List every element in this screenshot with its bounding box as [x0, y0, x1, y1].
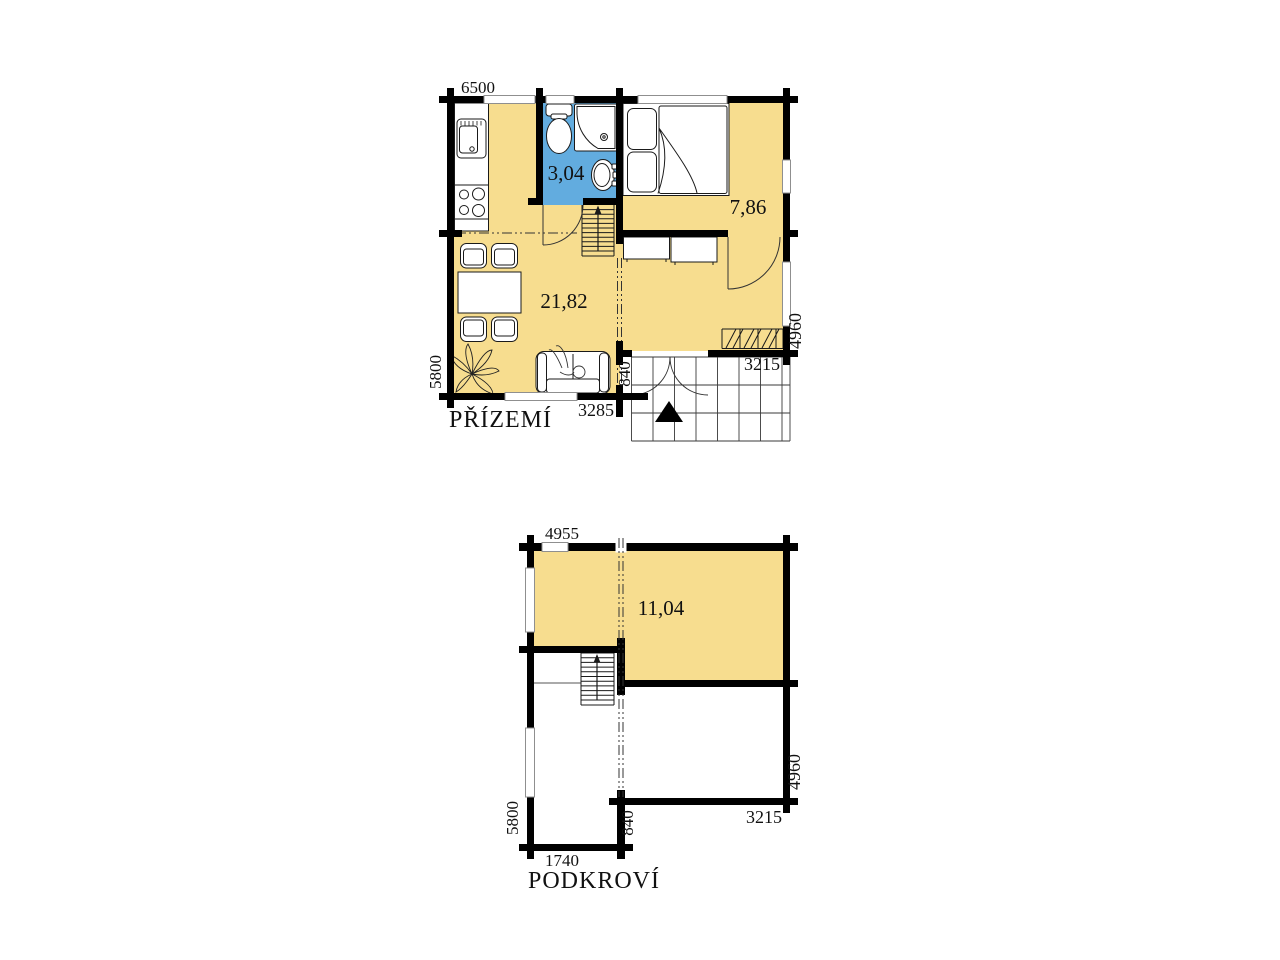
- window: [542, 543, 568, 552]
- window: [546, 96, 574, 104]
- window: [526, 728, 535, 797]
- double-bed: [623, 104, 729, 196]
- room-area-attic: 11,04: [638, 596, 685, 620]
- dim-height-right: 4960: [784, 754, 804, 790]
- room-area-bathroom: 3,04: [548, 161, 585, 185]
- dim-width-top: 4955: [545, 524, 579, 543]
- sofa: [536, 346, 610, 394]
- dining-table: [458, 272, 521, 313]
- ground-floor-title: PŘÍZEMÍ: [449, 407, 552, 433]
- chair: [492, 317, 518, 342]
- attic-stairs: [581, 653, 614, 705]
- dim-height-left: 5800: [426, 355, 445, 389]
- dim-terrace-width: 3215: [744, 354, 780, 374]
- chair: [492, 244, 518, 269]
- dim-height-left: 5800: [503, 801, 522, 835]
- window: [638, 96, 727, 104]
- dim-living-bottom: 3285: [578, 400, 614, 420]
- ground-floor-plan: 6500 3,04 7,86 21,82 5800 3285 840 3215 …: [426, 78, 805, 441]
- entrance-arrow-icon: [655, 401, 683, 422]
- dim-terrace-depth: 840: [615, 361, 634, 387]
- floor-plan-canvas: 6500 3,04 7,86 21,82 5800 3285 840 3215 …: [0, 0, 1280, 960]
- terrace-door-swing-arcs: [632, 357, 708, 395]
- room-area-living: 21,82: [540, 289, 587, 313]
- washbasin: [592, 160, 620, 191]
- chair: [461, 244, 487, 269]
- window: [526, 568, 535, 632]
- section-break: [616, 542, 627, 553]
- shower: [575, 104, 618, 151]
- attic-floor-plan: 4955 11,04 5800 1740 840 3215 4960 PODKR…: [503, 524, 804, 894]
- room-area-bedroom: 7,86: [730, 195, 767, 219]
- toilet: [546, 104, 572, 154]
- window: [783, 160, 791, 193]
- attic-floor-title: PODKROVÍ: [528, 868, 660, 894]
- dim-terrace-depth: 840: [618, 810, 637, 836]
- kitchen-sink: [457, 119, 486, 158]
- pillow: [628, 152, 657, 192]
- chair: [461, 317, 487, 342]
- floor-plan-page: 6500 3,04 7,86 21,82 5800 3285 840 3215 …: [0, 0, 1280, 960]
- dim-height-right: 4960: [785, 313, 805, 349]
- dim-bottom-right: 3215: [746, 807, 782, 827]
- pillow: [628, 109, 657, 150]
- kitchen-counter: [455, 103, 489, 231]
- dim-width-top: 6500: [461, 78, 495, 97]
- stove: [455, 185, 489, 219]
- window: [505, 393, 577, 401]
